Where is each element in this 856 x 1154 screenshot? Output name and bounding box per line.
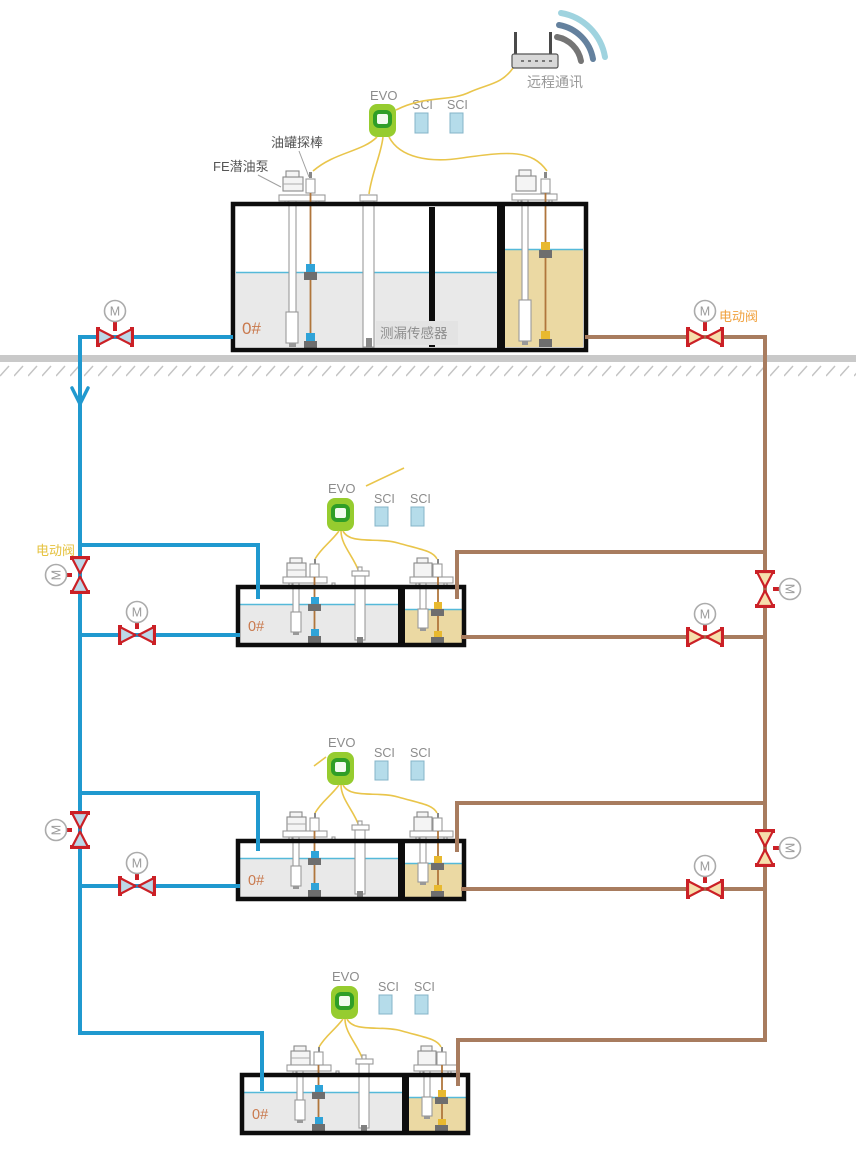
motor-indicator: M [127,602,148,623]
motor-indicator: M [127,853,148,874]
pointer-line [299,151,309,177]
motor-valve [686,322,724,347]
motor-indicator: M [695,856,716,877]
motor-valve [118,871,156,896]
electric-valve-label: 电动阀 [719,309,758,324]
sci-label: SCI [447,98,468,112]
signal-wire [369,137,383,194]
tank-probe-label: 油罐探棒 [271,135,323,150]
motor-label: M [700,305,710,319]
motor-label: M [50,825,64,835]
pipeline-diagram: EVO SCI SCI 0# [0,0,856,1154]
diagram-canvas: EVO SCI SCI 0# [0,0,856,1154]
motor-indicator: M [780,838,801,859]
evo-controller-group: EVO SCI SCI [313,68,547,194]
motor-valve [686,874,724,899]
pointer-line [258,175,281,187]
pump-label: FE潜油泵 [213,159,269,174]
electric-valve-label: 电动阀 [36,543,75,558]
fuel-grade-label: 0# [242,319,261,338]
motor-label: M [700,608,710,622]
leak-sensor-label: 测漏传感器 [380,325,448,341]
signal-wire [366,468,404,486]
motor-label: M [110,305,120,319]
motor-indicator: M [46,565,67,586]
motor-label: M [132,606,142,620]
wifi-signal-icon [557,13,605,61]
return-pipe-brown [457,337,765,1086]
motor-label: M [783,843,797,853]
motor-indicator: M [695,604,716,625]
signal-wire [314,757,326,766]
motor-valve [118,620,156,645]
motor-indicator: M [46,820,67,841]
motor-label: M [783,584,797,594]
main-tank-group: 0# [213,135,586,350]
antenna-icon [549,32,552,55]
motor-indicator: M [695,301,716,322]
sci-module-icon [450,113,463,133]
tank-group-2 [238,481,464,645]
motor-indicator: M [105,301,126,322]
motor-valve [686,622,724,647]
router: 远程通讯 [512,13,605,90]
evo-controller-inner [375,112,390,126]
ground-line [0,355,856,377]
tank-group-3 [238,735,464,899]
signal-wire [389,137,547,171]
supply-pipe-blue [72,337,262,1091]
leak-sensor-icon [360,195,377,347]
tank-group-4 [242,969,468,1133]
sci-module-icon [415,113,428,133]
antenna-icon [514,32,517,55]
motor-label: M [700,860,710,874]
remote-comm-label: 远程通讯 [527,74,583,90]
motor-label: M [50,570,64,580]
motor-valve [96,322,134,347]
motor-label: M [132,857,142,871]
evo-label: EVO [370,88,397,103]
motor-indicator: M [780,579,801,600]
tank-divider-wall [497,204,505,350]
